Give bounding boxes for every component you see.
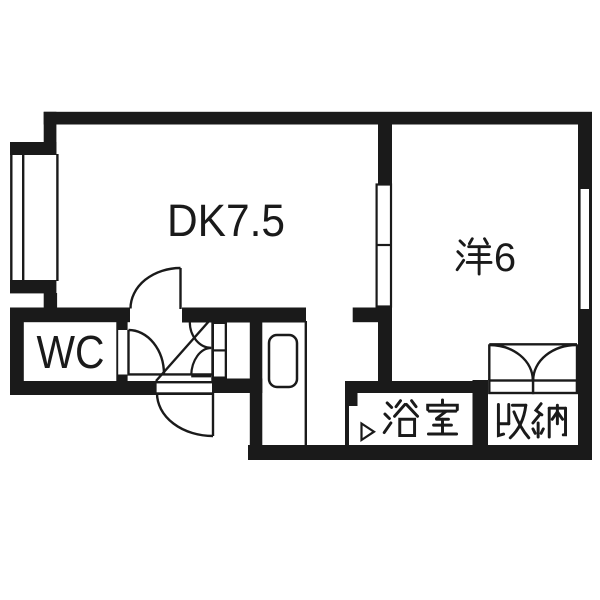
svg-text:DK7.5: DK7.5 [167,195,285,246]
svg-text:WC: WC [37,326,105,378]
svg-text:6: 6 [494,236,516,280]
